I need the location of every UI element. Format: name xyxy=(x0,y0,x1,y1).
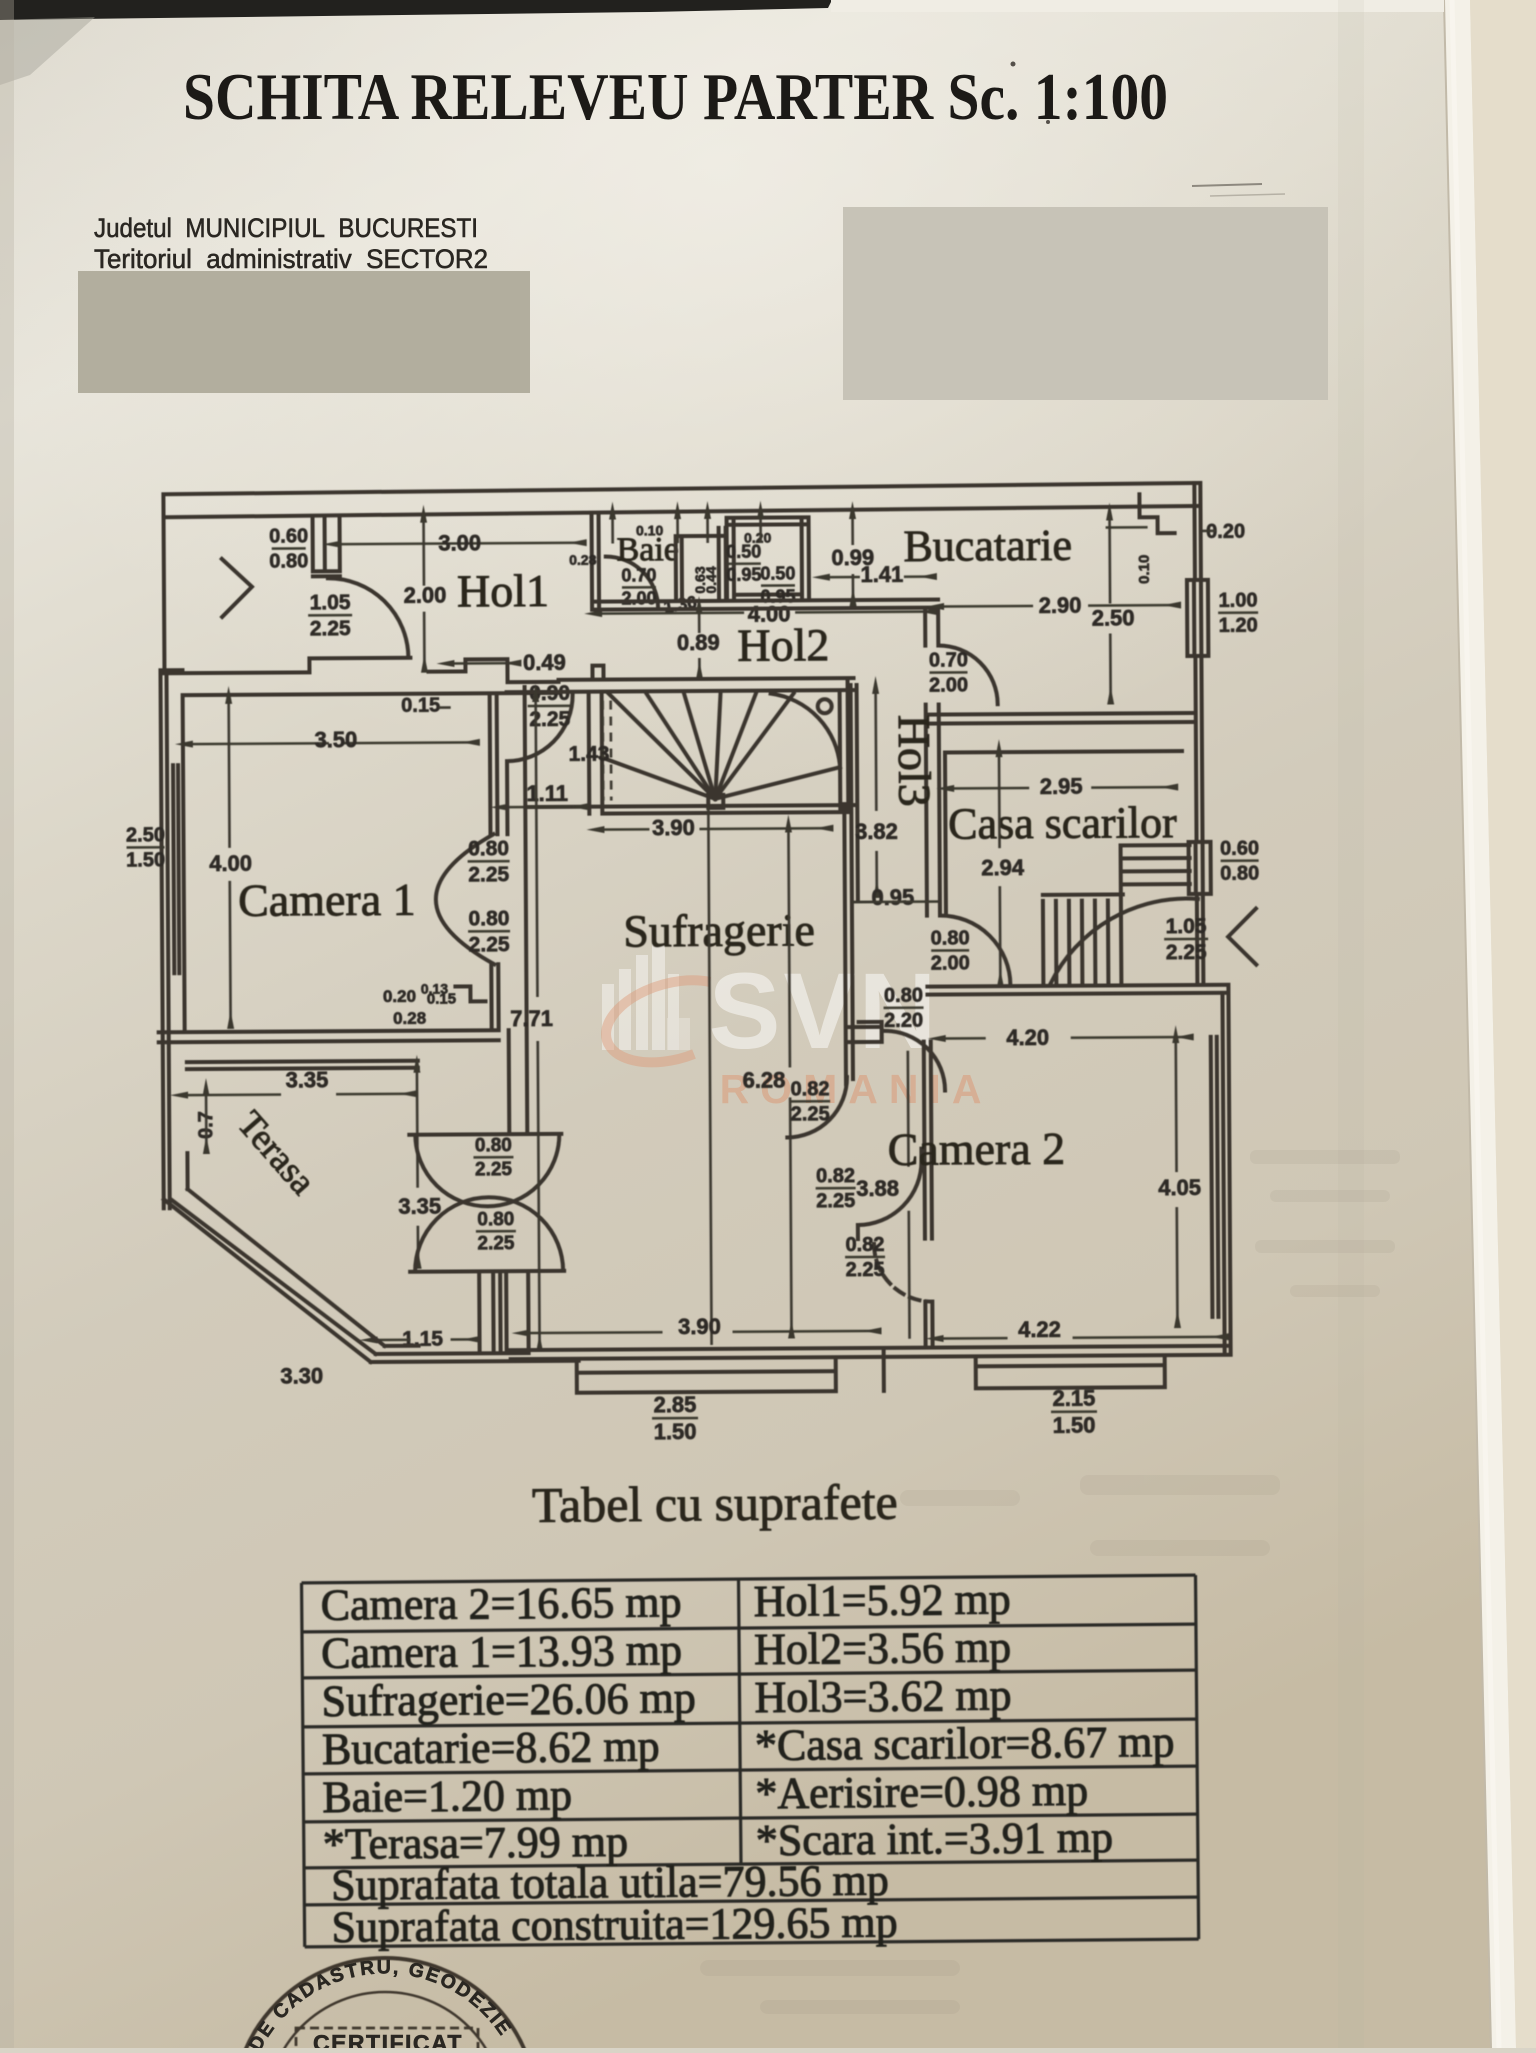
svg-text:SCHITA RELEVEU PARTER Sc. 1:10: SCHITA RELEVEU PARTER Sc. 1:100 xyxy=(183,60,1168,134)
svg-text:2.20: 2.20 xyxy=(884,1010,923,1032)
svg-text:Bucatarie=8.62 mp: Bucatarie=8.62 mp xyxy=(322,1722,660,1774)
svg-text:1.41: 1.41 xyxy=(860,562,903,587)
svg-text:2.00: 2.00 xyxy=(931,952,970,974)
svg-text:Baie=1.20 mp: Baie=1.20 mp xyxy=(322,1771,572,1822)
svg-text:Camera 2: Camera 2 xyxy=(887,1123,1065,1175)
svg-text:2.90: 2.90 xyxy=(1039,593,1082,618)
svg-text:4.20: 4.20 xyxy=(1006,1025,1049,1050)
svg-text:3.30: 3.30 xyxy=(280,1363,323,1388)
svg-text:Sufragerie=26.06 mp: Sufragerie=26.06 mp xyxy=(321,1673,696,1725)
svg-text:0.28: 0.28 xyxy=(569,552,597,568)
svg-text:2.25: 2.25 xyxy=(468,863,509,886)
svg-text:2.00: 2.00 xyxy=(404,583,447,608)
svg-text:3.35: 3.35 xyxy=(285,1067,328,1092)
svg-text:0.82: 0.82 xyxy=(791,1078,830,1100)
svg-text:0.95: 0.95 xyxy=(871,885,914,910)
svg-text:0.82: 0.82 xyxy=(816,1165,855,1187)
svg-text:2.25: 2.25 xyxy=(1166,941,1207,964)
svg-text:4.05: 4.05 xyxy=(1158,1175,1201,1200)
svg-text:3.35: 3.35 xyxy=(398,1194,441,1219)
svg-text:0.50: 0.50 xyxy=(726,542,761,562)
svg-text:1.00: 1.00 xyxy=(1219,590,1258,612)
svg-text:2.94: 2.94 xyxy=(981,855,1025,880)
svg-text:2.85: 2.85 xyxy=(653,1392,696,1417)
svg-text:6.28: 6.28 xyxy=(742,1067,785,1092)
svg-text:3.82: 3.82 xyxy=(855,819,898,844)
svg-text:0.10: 0.10 xyxy=(1136,555,1153,584)
svg-text:1.43: 1.43 xyxy=(568,743,609,766)
svg-text:3.50: 3.50 xyxy=(314,727,357,752)
svg-text:2.15: 2.15 xyxy=(1052,1386,1095,1411)
svg-text:Hol3: Hol3 xyxy=(889,715,941,807)
svg-text:1.05: 1.05 xyxy=(310,591,351,614)
svg-text:*Aerisire=0.98 mp: *Aerisire=0.98 mp xyxy=(755,1766,1088,1818)
svg-text:Sufragerie: Sufragerie xyxy=(623,904,815,956)
svg-text:1.20: 1.20 xyxy=(1219,615,1258,637)
svg-text:Judetul MUNICIPIUL BUCURESTI: Judetul MUNICIPIUL BUCURESTI xyxy=(94,213,478,243)
svg-text:Casa scarilor: Casa scarilor xyxy=(948,798,1177,848)
svg-text:4.00: 4.00 xyxy=(209,851,252,876)
svg-text:2.25: 2.25 xyxy=(469,933,510,956)
svg-text:3.00: 3.00 xyxy=(438,530,481,555)
svg-text:Camera 1: Camera 1 xyxy=(238,874,416,926)
svg-text:0.82: 0.82 xyxy=(845,1234,884,1256)
svg-text:3.88: 3.88 xyxy=(856,1176,899,1201)
svg-text:3.90: 3.90 xyxy=(678,1314,721,1339)
svg-text:CERTIFICAT: CERTIFICAT xyxy=(313,2030,463,2048)
svg-text:Hol1: Hol1 xyxy=(457,565,549,617)
svg-text:0.95: 0.95 xyxy=(726,565,761,585)
svg-text:0.60: 0.60 xyxy=(269,525,308,547)
svg-text:0.70: 0.70 xyxy=(621,565,656,585)
svg-text:0.70: 0.70 xyxy=(929,649,968,671)
svg-text:0.10: 0.10 xyxy=(636,522,664,538)
svg-text:2.25: 2.25 xyxy=(846,1259,885,1281)
svg-text:0.49: 0.49 xyxy=(523,650,566,675)
svg-text:*Casa scarilor=8.67 mp: *Casa scarilor=8.67 mp xyxy=(755,1717,1175,1770)
svg-text:Camera 2=16.65 mp: Camera 2=16.65 mp xyxy=(321,1578,682,1630)
svg-text:1.50: 1.50 xyxy=(1053,1412,1096,1437)
svg-text:2.25: 2.25 xyxy=(816,1190,855,1212)
svg-text:Hol1=5.92 mp: Hol1=5.92 mp xyxy=(753,1575,1010,1626)
svg-text:0.89: 0.89 xyxy=(677,630,720,655)
svg-text:2.25: 2.25 xyxy=(791,1103,830,1125)
svg-text:Tabel cu suprafete: Tabel cu suprafete xyxy=(532,1474,898,1533)
svg-text:0.80: 0.80 xyxy=(475,1135,512,1156)
svg-text:2.00: 2.00 xyxy=(621,588,656,608)
svg-text:0.15: 0.15 xyxy=(401,695,440,717)
svg-text:Hol2: Hol2 xyxy=(737,619,829,671)
svg-text:Suprafata construita=129.65 mp: Suprafata construita=129.65 mp xyxy=(331,1898,898,1952)
svg-text:2.25: 2.25 xyxy=(310,617,351,640)
svg-text:0.50: 0.50 xyxy=(760,563,795,583)
svg-text:0.80: 0.80 xyxy=(468,907,509,930)
svg-text:0.80: 0.80 xyxy=(1220,863,1259,885)
svg-text:0.80: 0.80 xyxy=(931,927,970,949)
svg-text:0.28: 0.28 xyxy=(393,1009,426,1028)
svg-text:Teritoriul administrativ SEC: Teritoriul administrativ SECTOR2 xyxy=(94,244,488,274)
svg-text:0.80: 0.80 xyxy=(477,1209,514,1230)
svg-text:3.90: 3.90 xyxy=(652,815,695,840)
svg-text:2.50: 2.50 xyxy=(126,824,165,846)
svg-text:2.50: 2.50 xyxy=(1092,605,1135,630)
svg-text:1.05: 1.05 xyxy=(1166,915,1207,938)
svg-text:0.60: 0.60 xyxy=(1220,838,1259,860)
svg-text:Camera 1=13.93 mp: Camera 1=13.93 mp xyxy=(321,1626,682,1678)
svg-text:2.00: 2.00 xyxy=(929,674,968,696)
svg-text:2.25: 2.25 xyxy=(475,1159,513,1180)
svg-text:Bucatarie: Bucatarie xyxy=(903,521,1072,571)
svg-text:1.50: 1.50 xyxy=(654,1419,697,1444)
svg-text:7.71: 7.71 xyxy=(510,1006,553,1031)
svg-text:0.80: 0.80 xyxy=(884,985,923,1007)
svg-text:0.80: 0.80 xyxy=(468,837,509,860)
svg-text:0.15: 0.15 xyxy=(427,990,456,1007)
svg-text:4.22: 4.22 xyxy=(1018,1317,1061,1342)
svg-text:Hol3=3.62 mp: Hol3=3.62 mp xyxy=(754,1671,1011,1722)
svg-text:2.95: 2.95 xyxy=(1040,774,1083,799)
svg-text:2.25: 2.25 xyxy=(477,1233,515,1254)
svg-text:0.44: 0.44 xyxy=(703,566,719,594)
svg-text:1.50: 1.50 xyxy=(126,849,165,871)
svg-text:0.80: 0.80 xyxy=(269,550,308,572)
svg-text:1.11: 1.11 xyxy=(526,781,568,806)
svg-text:Hol2=3.56 mp: Hol2=3.56 mp xyxy=(754,1623,1011,1674)
svg-text:0.20: 0.20 xyxy=(383,987,416,1006)
